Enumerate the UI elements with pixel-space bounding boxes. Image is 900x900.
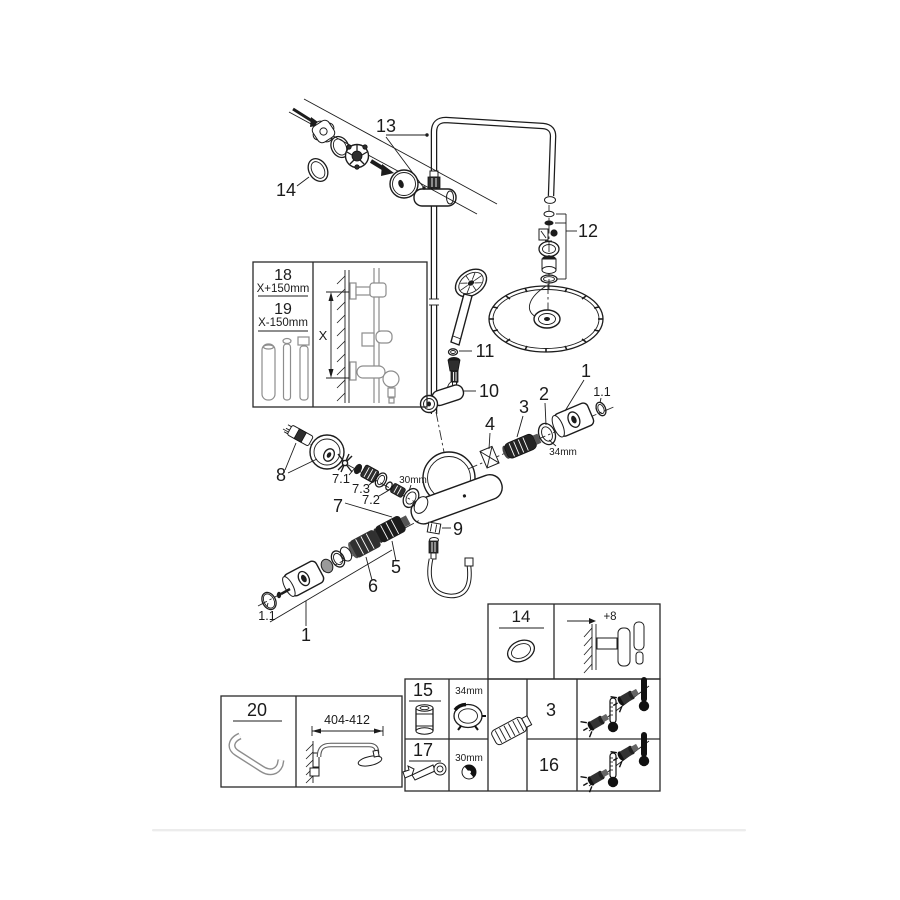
hand-shower <box>450 263 492 345</box>
callout-2: 2 <box>539 384 549 404</box>
size-label-30mm: 30mm <box>399 475 427 486</box>
wrench-icon <box>403 763 446 780</box>
temperature-knob-8 <box>310 435 344 469</box>
callout-14: 14 <box>276 180 296 200</box>
shower-arm-table: 20 404-412 <box>221 696 402 787</box>
callout-1-1-right: 1.1 <box>593 385 610 399</box>
shower-system-exploded-diagram: 13 14 <box>0 0 900 900</box>
applies-to-part-16: 16 <box>539 755 559 775</box>
exploded-parts-diagram-page: 13 14 <box>0 0 900 900</box>
page-divider <box>152 829 746 831</box>
inset-axis-label: X <box>319 328 328 343</box>
callout-1-1-bottom: 1.1 <box>258 609 275 623</box>
tool-part-15: 15 <box>413 680 433 700</box>
fitting-icon <box>579 764 612 794</box>
tool-size-34mm: 34mm <box>455 686 483 697</box>
coupling-disc <box>346 145 369 170</box>
head-shower-disc <box>489 284 603 352</box>
arm-dimension-label: 404-412 <box>324 713 370 727</box>
callout-1-bottom: 1 <box>301 625 311 645</box>
tool-size-30mm: 30mm <box>455 753 483 764</box>
callout-4: 4 <box>485 414 495 434</box>
callout-3: 3 <box>519 397 529 417</box>
mounting-height-drawing: X <box>319 268 399 403</box>
wall-union-tee <box>414 171 456 206</box>
hand-shower-handle <box>451 294 472 345</box>
fitting-icon <box>579 709 612 739</box>
sleeve-tool-icon <box>416 705 433 734</box>
wall-bracket-exploded-13: 13 14 <box>276 99 497 214</box>
inset-part-19: 19 <box>274 301 292 318</box>
seal-ring-14 <box>304 155 332 185</box>
callout-12: 12 <box>578 221 598 241</box>
screw-and-hose-9: 9 <box>427 519 473 596</box>
thermometer-icon <box>639 677 649 711</box>
inset-dim-18: X+150mm <box>257 283 310 295</box>
callout-1-right: 1 <box>581 361 591 381</box>
ring-nut-34-icon <box>454 705 486 731</box>
applies-to-part-3: 3 <box>546 700 556 720</box>
callout-7-2: 7.2 <box>362 492 380 507</box>
arm-part-20: 20 <box>247 700 267 720</box>
escutcheon-rosette <box>390 170 418 198</box>
callout-5: 5 <box>391 557 401 577</box>
callout-11: 11 <box>476 341 495 361</box>
seal-table-part: 14 <box>512 607 531 626</box>
callout-13: 13 <box>376 116 396 136</box>
wall-offset-drawing: +8 <box>567 611 644 673</box>
callout-7: 7 <box>333 496 343 516</box>
wall-offset-label: +8 <box>603 611 616 623</box>
arm-pipe-icon <box>232 736 281 772</box>
filter-4 <box>480 446 499 468</box>
inset-part-18: 18 <box>274 267 292 284</box>
arm-outlet-cap <box>545 197 556 204</box>
arm-dimension-drawing: 404-412 <box>306 713 383 783</box>
check-valve-3 <box>500 431 542 461</box>
callout-10: 10 <box>479 381 499 401</box>
shower-column-pipes <box>414 120 556 414</box>
connector-sleeve <box>542 256 556 274</box>
callout-9: 9 <box>453 519 463 539</box>
washer <box>544 211 554 217</box>
inset-dim-19: X-150mm <box>258 317 308 329</box>
thermometer-cell-3 <box>579 677 649 738</box>
seal-washer <box>545 221 554 226</box>
right-connection-chain: 4 3 2 1 1.1 34mm <box>468 361 616 469</box>
thermometer-icon <box>639 732 649 766</box>
tool-part-17: 17 <box>413 740 433 760</box>
head-joint-stack-12: 12 <box>539 205 598 290</box>
callout-7-1: 7.1 <box>332 471 350 486</box>
s-union-1 <box>549 402 595 440</box>
callout-6: 6 <box>368 576 378 596</box>
ball-joint <box>539 229 558 241</box>
callout-8: 8 <box>276 465 286 485</box>
size-label-34mm: 34mm <box>549 447 577 458</box>
service-parts-table: 15 34mm 17 30mm <box>403 677 660 793</box>
length-variants-inset: 18 X+150mm 19 X-150mm <box>253 262 427 407</box>
seal-table: 14 +8 <box>488 604 660 679</box>
temperature-handle-chain: 8 7.1 7.3 7.2 7 30mm <box>276 423 431 517</box>
handle-screw-8 <box>284 423 314 446</box>
bottom-union-chain: 1 1.1 5 6 <box>258 512 420 645</box>
thermometer-cell-16 <box>579 732 649 793</box>
seal-ring-icon <box>504 636 538 666</box>
socket-30-icon <box>462 762 479 779</box>
rail-length-variants <box>262 337 309 400</box>
